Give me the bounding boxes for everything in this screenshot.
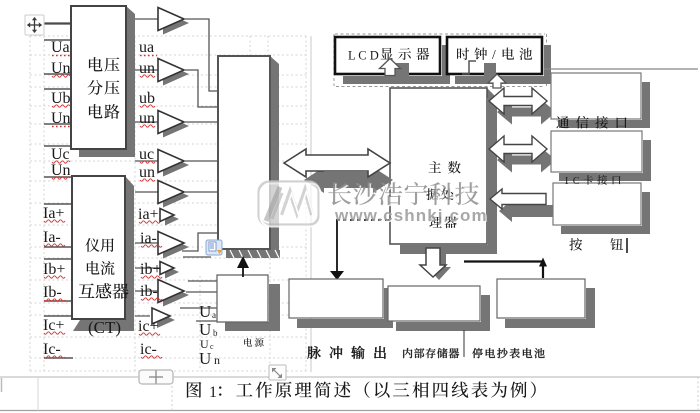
svg-text:U: U bbox=[199, 302, 211, 321]
svg-text:Ic+: Ic+ bbox=[43, 317, 64, 334]
svg-text:ib+: ib+ bbox=[140, 261, 161, 278]
svg-text:Ia-: Ia- bbox=[43, 229, 61, 246]
svg-text:1: 1 bbox=[209, 384, 217, 401]
svg-text:ib-: ib- bbox=[140, 283, 158, 300]
svg-text:Ia+: Ia+ bbox=[43, 205, 64, 222]
svg-text:un: un bbox=[139, 110, 155, 127]
svg-text:b: b bbox=[213, 328, 218, 338]
svg-text:ic-: ic- bbox=[140, 341, 157, 358]
svg-text:Un: Un bbox=[51, 60, 71, 77]
svg-text:(CT): (CT) bbox=[88, 318, 121, 337]
svg-text:ub: ub bbox=[139, 90, 155, 107]
svg-text:ua: ua bbox=[139, 39, 154, 56]
svg-text:I C: I C bbox=[565, 176, 581, 187]
svg-text:a: a bbox=[212, 310, 216, 320]
svg-text:L C D: L C D bbox=[348, 49, 379, 63]
svg-text:Un: Un bbox=[51, 110, 71, 127]
svg-text:n: n bbox=[214, 353, 220, 367]
svg-text:Un: Un bbox=[51, 162, 71, 179]
svg-text:un: un bbox=[139, 164, 155, 181]
svg-text:Ub: Ub bbox=[51, 90, 71, 107]
svg-text:Ic-: Ic- bbox=[43, 341, 61, 358]
svg-text:www.cshnkj.com: www.cshnkj.com bbox=[334, 206, 488, 225]
svg-text:Ib-: Ib- bbox=[43, 284, 62, 301]
svg-text:/: / bbox=[492, 47, 496, 62]
svg-text:Ua: Ua bbox=[51, 39, 70, 56]
svg-text:Uc: Uc bbox=[51, 146, 70, 163]
svg-text:U: U bbox=[199, 349, 211, 368]
svg-text:un: un bbox=[139, 60, 155, 77]
svg-text:ia-: ia- bbox=[140, 230, 157, 247]
svg-text:uc: uc bbox=[139, 146, 154, 163]
